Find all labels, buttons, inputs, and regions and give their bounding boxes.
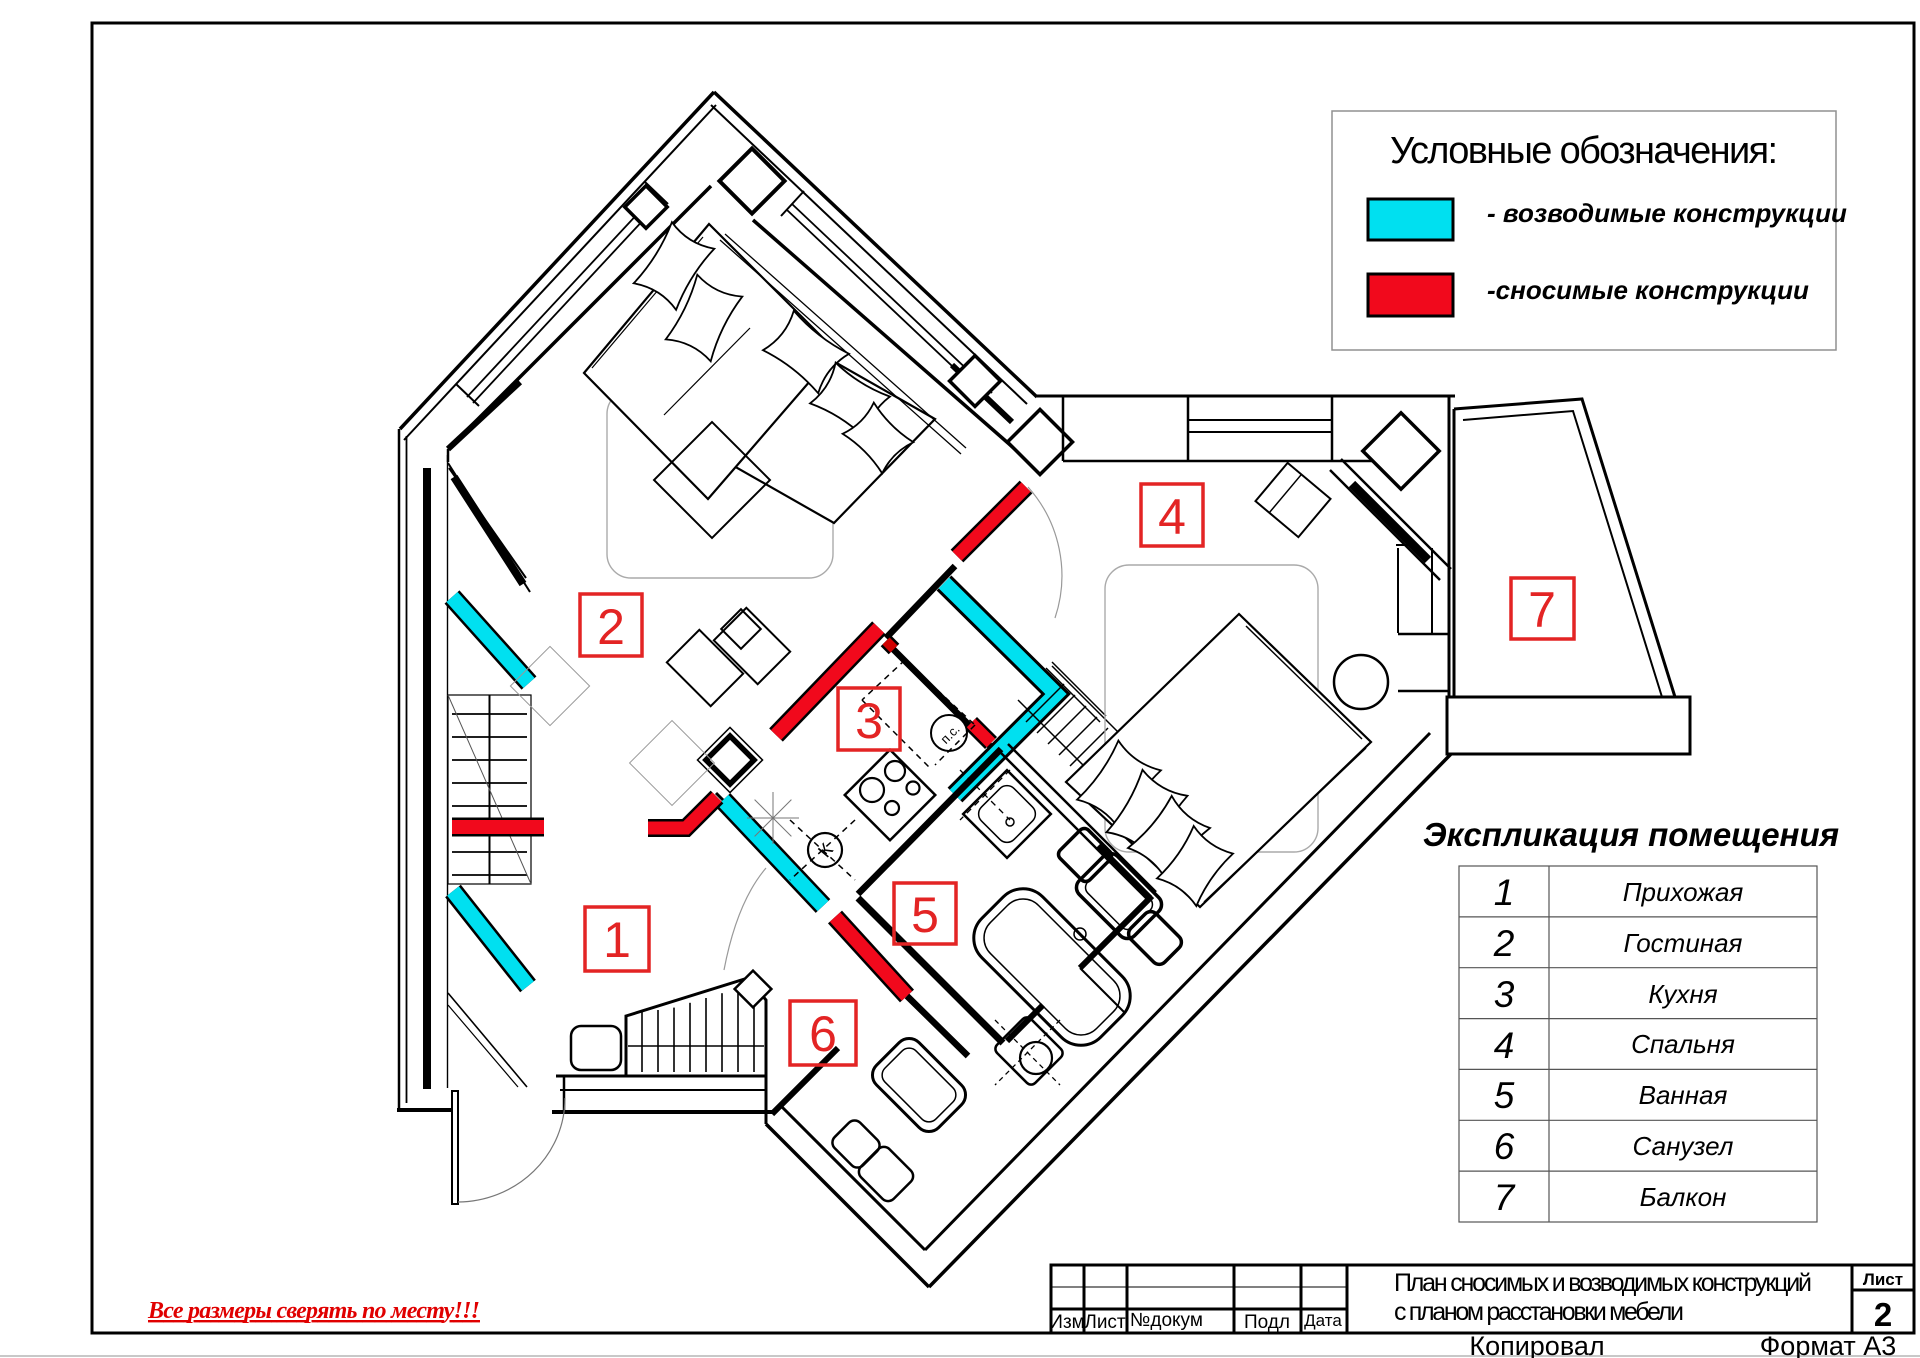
svg-text:-сносимые конструкции: -сносимые конструкции [1487, 275, 1809, 305]
svg-text:5: 5 [1494, 1075, 1515, 1116]
svg-text:6: 6 [809, 1006, 837, 1062]
svg-text:Балкон: Балкон [1640, 1182, 1727, 1212]
svg-text:6: 6 [1494, 1126, 1515, 1167]
svg-text:Ванная: Ванная [1639, 1080, 1728, 1110]
svg-text:7: 7 [1494, 1177, 1516, 1218]
svg-text:Изм: Изм [1049, 1312, 1084, 1333]
svg-text:Прихожая: Прихожая [1623, 877, 1744, 907]
svg-text:Подл: Подл [1244, 1312, 1290, 1333]
svg-text:5: 5 [911, 887, 939, 943]
svg-text:Спальня: Спальня [1631, 1029, 1735, 1059]
svg-text:План сносимых и возводимых кон: План сносимых и возводимых конструкций [1394, 1269, 1812, 1297]
svg-text:Лист: Лист [1084, 1312, 1126, 1333]
svg-text:4: 4 [1494, 1025, 1515, 1066]
svg-text:4: 4 [1158, 489, 1186, 545]
svg-text:1: 1 [603, 912, 631, 968]
svg-text:Дата: Дата [1304, 1311, 1342, 1330]
svg-text:7: 7 [1528, 582, 1556, 638]
svg-text:2: 2 [597, 599, 625, 655]
svg-text:Гостиная: Гостиная [1624, 928, 1743, 958]
svg-text:- возводимые конструкции: - возводимые конструкции [1487, 198, 1847, 228]
svg-text:3: 3 [855, 693, 883, 749]
svg-text:Санузел: Санузел [1633, 1131, 1734, 1161]
svg-text:Лист: Лист [1863, 1270, 1903, 1289]
svg-text:Все размеры сверять по месту!!: Все размеры сверять по месту!!! [147, 1298, 480, 1324]
svg-text:Условные обозначения:: Условные обозначения: [1390, 130, 1778, 172]
svg-text:1: 1 [1494, 872, 1515, 913]
svg-text:с планом расстановки мебели: с планом расстановки мебели [1394, 1298, 1684, 1326]
svg-text:3: 3 [1494, 974, 1515, 1015]
svg-text:2: 2 [1493, 923, 1515, 964]
svg-text:Экспликация помещения: Экспликация помещения [1423, 816, 1839, 853]
svg-text:2: 2 [1874, 1296, 1892, 1333]
svg-text:Кухня: Кухня [1648, 979, 1717, 1009]
svg-text:Копировал: Копировал [1469, 1331, 1604, 1358]
svg-text:Формат А3: Формат А3 [1760, 1331, 1896, 1358]
svg-text:№докум: №докум [1130, 1310, 1203, 1331]
